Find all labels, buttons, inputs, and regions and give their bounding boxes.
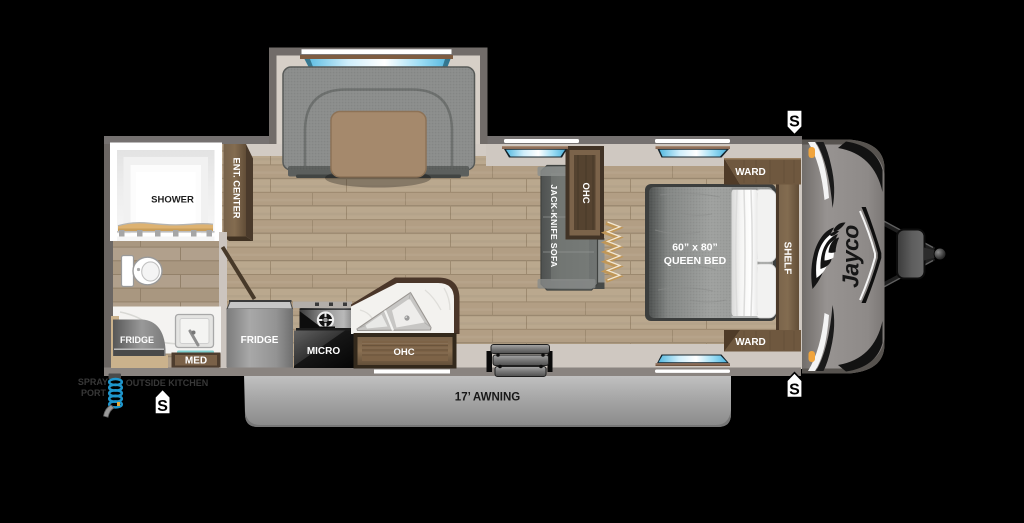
svg-text:SHELF: SHELF — [782, 242, 793, 275]
svg-text:60” x 80”: 60” x 80” — [672, 242, 718, 254]
svg-text:OHC: OHC — [580, 182, 591, 203]
svg-text:OHC: OHC — [393, 347, 414, 358]
svg-text:S: S — [157, 398, 168, 415]
svg-text:OUTSIDE KITCHEN: OUTSIDE KITCHEN — [126, 378, 209, 388]
svg-text:MED: MED — [185, 356, 207, 367]
svg-text:FRIDGE: FRIDGE — [241, 335, 279, 346]
svg-text:ENT. CENTER: ENT. CENTER — [232, 158, 242, 219]
svg-text:SPRAY: SPRAY — [78, 377, 108, 387]
svg-text:FRIDGE: FRIDGE — [120, 335, 154, 345]
svg-text:MICRO: MICRO — [307, 346, 341, 357]
svg-text:S: S — [789, 382, 800, 399]
svg-text:17’ AWNING: 17’ AWNING — [455, 392, 520, 404]
svg-text:QUEEN BED: QUEEN BED — [664, 255, 727, 267]
svg-text:S: S — [789, 114, 800, 131]
svg-text:PORT: PORT — [81, 388, 107, 398]
svg-text:SHOWER: SHOWER — [151, 195, 194, 206]
svg-text:JACK-KNIFE SOFA: JACK-KNIFE SOFA — [549, 184, 559, 268]
svg-text:Jayco: Jayco — [838, 225, 864, 288]
svg-text:WARD: WARD — [735, 337, 766, 348]
svg-text:WARD: WARD — [735, 167, 766, 178]
